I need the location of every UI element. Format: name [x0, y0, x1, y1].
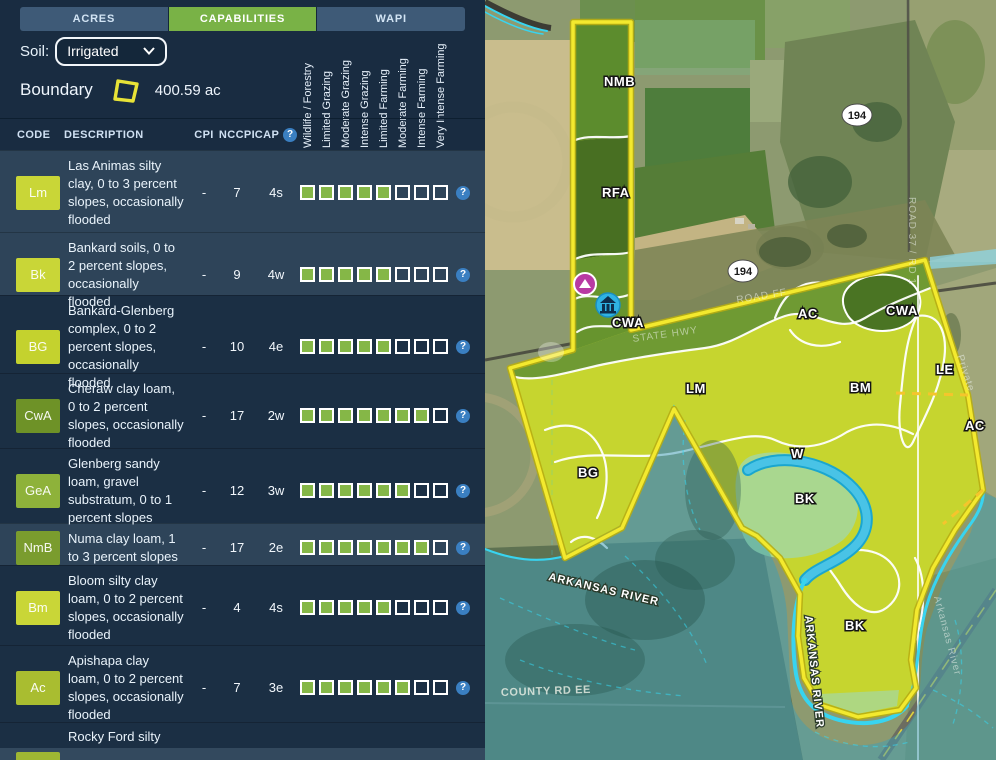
tab-acres[interactable]: ACRES [20, 7, 169, 31]
nccpi-value: 7 [218, 185, 256, 200]
table-row[interactable]: LmLas Animas silty clay, 0 to 3 percent … [0, 150, 485, 232]
nccpi-value: 10 [218, 339, 256, 354]
table-row[interactable]: CwACheraw clay loam, 0 to 2 percent slop… [0, 373, 485, 448]
cpi-value: - [190, 483, 218, 498]
capability-square-filled [338, 339, 353, 354]
row-help-icon[interactable]: ? [456, 541, 470, 555]
capability-square-empty [414, 483, 429, 498]
soil-code-badge: Bm [16, 591, 60, 625]
map-region-label-bk: BK [845, 618, 865, 633]
table-row[interactable]: Rocky Ford silty clay loam, 0 to 1 [0, 722, 485, 748]
highway-shield-number: 194 [734, 266, 753, 278]
code-cell: Lm [0, 176, 64, 210]
code-cell: Bm [0, 591, 64, 625]
capability-square-filled [376, 339, 391, 354]
map-region-label-cwa: CWA [612, 315, 644, 330]
capability-square-empty [433, 408, 448, 423]
capability-square-filled [414, 408, 429, 423]
capability-square-filled [319, 185, 334, 200]
highway-shield-194: 194 [728, 260, 758, 282]
col-header-code: CODE [0, 129, 64, 141]
capability-square-filled [395, 680, 410, 695]
building-column [611, 304, 614, 311]
capability-square-filled [376, 680, 391, 695]
row-help-cell: ? [454, 484, 476, 498]
capability-square-filled [319, 483, 334, 498]
row-help-icon[interactable]: ? [456, 484, 470, 498]
capability-square-filled [338, 267, 353, 282]
capability-square-empty [395, 185, 410, 200]
cpi-value: - [190, 600, 218, 615]
map-region-label-bg: BG [578, 465, 599, 480]
soil-description: Glenberg sandy loam, gravel substratum, … [64, 449, 190, 533]
capability-squares [296, 339, 454, 354]
capability-square-empty [395, 267, 410, 282]
capability-square-filled [300, 483, 315, 498]
nccpi-value: 4 [218, 600, 256, 615]
capability-square-empty [414, 267, 429, 282]
capability-square-filled [357, 339, 372, 354]
capability-square-filled [300, 540, 315, 555]
capability-square-empty [433, 339, 448, 354]
capability-square-empty [433, 600, 448, 615]
cap-value: 4s [256, 185, 296, 200]
cpi-value: - [190, 339, 218, 354]
col-header-description: DESCRIPTION [64, 129, 190, 141]
nccpi-value: 9 [218, 267, 256, 282]
soil-description: Bloom silty clay loam, 0 to 2 percent sl… [64, 566, 190, 650]
cap-help-icon[interactable]: ? [283, 128, 297, 142]
capability-square-filled [300, 600, 315, 615]
soil-select-dropdown[interactable]: Irrigated [55, 37, 167, 66]
nccpi-value: 17 [218, 408, 256, 423]
cap-value: 3w [256, 483, 296, 498]
cap-value: 4s [256, 600, 296, 615]
cap-value: 2e [256, 540, 296, 555]
capability-square-empty [433, 185, 448, 200]
map-region-label-ac: AC [965, 418, 985, 433]
soil-code-badge: NmB [16, 531, 60, 565]
row-help-icon[interactable]: ? [456, 268, 470, 282]
capability-square-filled [357, 267, 372, 282]
tab-bar: ACRESCAPABILITIESWAPI [20, 7, 465, 31]
capability-square-filled [300, 680, 315, 695]
cpi-value: - [190, 267, 218, 282]
soil-description: Cheraw clay loam, 0 to 2 percent slopes,… [64, 374, 190, 458]
map-region-label-nmb: NMB [604, 74, 635, 89]
map-region-label-cwa: CWA [886, 303, 918, 318]
capability-square-filled [395, 483, 410, 498]
capability-square-filled [376, 483, 391, 498]
table-row[interactable]: AcApishapa clay loam, 0 to 2 percent slo… [0, 645, 485, 722]
row-help-cell: ? [454, 340, 476, 354]
soil-select-value: Irrigated [67, 43, 118, 59]
capability-squares [296, 185, 454, 200]
soil-code-badge: Ac [16, 671, 60, 705]
capability-square-empty [395, 600, 410, 615]
row-help-icon[interactable]: ? [456, 601, 470, 615]
table-row[interactable]: GeAGlenberg sandy loam, gravel substratu… [0, 448, 485, 523]
capability-square-filled [300, 339, 315, 354]
soil-code-badge: CwA [16, 399, 60, 433]
boundary-area-value: 400.59 ac [155, 82, 221, 99]
capability-square-filled [300, 408, 315, 423]
col-header-nccpi: NCCPI [218, 129, 256, 141]
nccpi-value: 7 [218, 680, 256, 695]
row-help-cell: ? [454, 409, 476, 423]
capability-square-filled [338, 483, 353, 498]
soil-description: Numa clay loam, 1 to 3 percent slopes [64, 524, 190, 572]
capability-squares [296, 600, 454, 615]
capability-squares [296, 540, 454, 555]
cpi-value: - [190, 185, 218, 200]
soil-code-badge-partial [16, 752, 60, 760]
soil-code-badge: BG [16, 330, 60, 364]
capability-square-filled [338, 540, 353, 555]
soil-label: Soil: [20, 43, 49, 60]
tab-wapi[interactable]: WAPI [317, 7, 465, 31]
capability-square-filled [376, 540, 391, 555]
boundary-polygon-icon[interactable] [109, 75, 143, 105]
map-region-label-bk: BK [795, 491, 815, 506]
code-cell: CwA [0, 399, 64, 433]
table-header: CODE DESCRIPTION CPI NCCPI CAP ? [0, 118, 485, 150]
map-region-label-w: W [791, 446, 804, 461]
row-help-cell: ? [454, 186, 476, 200]
capability-square-empty [433, 540, 448, 555]
capability-square-filled [395, 540, 410, 555]
code-cell: BG [0, 330, 64, 364]
building-column [602, 304, 605, 311]
code-cell: Bk [0, 258, 64, 292]
soil-description: Las Animas silty clay, 0 to 3 percent sl… [64, 151, 190, 235]
chevron-down-icon [143, 47, 155, 55]
building-marker[interactable] [596, 293, 620, 317]
table-row[interactable]: NmBNuma clay loam, 1 to 3 percent slopes… [0, 523, 485, 565]
cap-value: 2w [256, 408, 296, 423]
soil-code-badge: GeA [16, 474, 60, 508]
next-row-partial [0, 748, 485, 760]
map-region-label-lm: LM [686, 381, 706, 396]
capability-square-filled [376, 267, 391, 282]
capability-square-filled [376, 408, 391, 423]
capability-square-filled [338, 680, 353, 695]
boundary-row: Boundary 400.59 ac [20, 74, 221, 106]
capability-square-filled [357, 185, 372, 200]
cap-value: 3e [256, 680, 296, 695]
soil-description: Rocky Ford silty clay loam, 0 to 1 [64, 723, 190, 748]
capability-square-filled [319, 540, 334, 555]
campground-marker[interactable] [574, 273, 596, 295]
capability-square-filled [414, 540, 429, 555]
capability-square-empty [414, 600, 429, 615]
capability-square-empty [414, 185, 429, 200]
soil-table-body: LmLas Animas silty clay, 0 to 3 percent … [0, 150, 485, 748]
map-region-label-ac: AC [798, 306, 818, 321]
tab-capabilities[interactable]: CAPABILITIES [169, 7, 318, 31]
capability-squares [296, 267, 454, 282]
highway-shield-number: 194 [848, 110, 867, 122]
code-cell: Ac [0, 671, 64, 705]
capability-square-filled [357, 483, 372, 498]
capability-square-filled [395, 408, 410, 423]
satellite-map[interactable]: NMBRFACWAACCWALELMBMACBGWBKBK194194ROAD … [485, 0, 996, 760]
col-header-cap: CAP ? [256, 128, 296, 142]
boundary-label: Boundary [20, 80, 93, 100]
map-region-label-bm: BM [850, 380, 871, 395]
row-help-cell: ? [454, 541, 476, 555]
soil-sidebar: ACRESCAPABILITIESWAPI Soil: Irrigated Bo… [0, 0, 485, 760]
capability-square-empty [433, 483, 448, 498]
row-help-icon[interactable]: ? [456, 186, 470, 200]
capability-square-empty [433, 267, 448, 282]
soil-code-badge: Bk [16, 258, 60, 292]
code-cell: GeA [0, 474, 64, 508]
row-help-icon[interactable]: ? [456, 340, 470, 354]
row-help-cell: ? [454, 601, 476, 615]
road-label: ROAD 37 / RD 1 [906, 197, 917, 285]
capability-square-filled [376, 185, 391, 200]
capability-square-filled [376, 600, 391, 615]
col-header-cpi: CPI [190, 129, 218, 141]
capability-square-filled [357, 600, 372, 615]
row-help-cell: ? [454, 268, 476, 282]
capability-square-filled [357, 680, 372, 695]
soil-code-badge: Lm [16, 176, 60, 210]
capability-square-filled [319, 408, 334, 423]
capability-square-filled [338, 408, 353, 423]
highway-shield-194: 194 [842, 104, 872, 126]
row-help-icon[interactable]: ? [456, 409, 470, 423]
capability-square-filled [319, 267, 334, 282]
capability-square-empty [414, 339, 429, 354]
capability-squares [296, 483, 454, 498]
capability-square-filled [338, 185, 353, 200]
map-region-label-rfa: RFA [602, 185, 630, 200]
row-help-icon[interactable]: ? [456, 681, 470, 695]
soil-description: Apishapa clay loam, 0 to 2 percent slope… [64, 646, 190, 730]
table-row[interactable]: BGBankard-Glenberg complex, 0 to 2 perce… [0, 295, 485, 373]
nccpi-value: 17 [218, 540, 256, 555]
capability-square-filled [319, 339, 334, 354]
capability-square-filled [319, 600, 334, 615]
cpi-value: - [190, 680, 218, 695]
capability-square-empty [433, 680, 448, 695]
capability-square-filled [357, 408, 372, 423]
cap-value: 4e [256, 339, 296, 354]
cap-header-text: CAP [255, 129, 279, 141]
cpi-value: - [190, 408, 218, 423]
code-cell: NmB [0, 531, 64, 565]
capability-squares [296, 680, 454, 695]
capability-square-filled [300, 185, 315, 200]
capability-square-empty [414, 680, 429, 695]
capability-square-filled [319, 680, 334, 695]
capability-squares [296, 408, 454, 423]
soil-selector-row: Soil: Irrigated [20, 36, 167, 66]
building-column [607, 304, 610, 311]
row-help-cell: ? [454, 681, 476, 695]
nccpi-value: 12 [218, 483, 256, 498]
table-row[interactable]: BkBankard soils, 0 to 2 percent slopes, … [0, 232, 485, 295]
capability-square-filled [300, 267, 315, 282]
capability-square-filled [338, 600, 353, 615]
capability-square-filled [357, 540, 372, 555]
map-region-label-le: LE [936, 362, 954, 377]
cpi-value: - [190, 540, 218, 555]
building-base [600, 311, 616, 314]
capability-square-empty [395, 339, 410, 354]
soil-capabilities-app: ACRESCAPABILITIESWAPI Soil: Irrigated Bo… [0, 0, 996, 760]
cap-value: 4w [256, 267, 296, 282]
table-row[interactable]: BmBloom silty clay loam, 0 to 2 percent … [0, 565, 485, 645]
